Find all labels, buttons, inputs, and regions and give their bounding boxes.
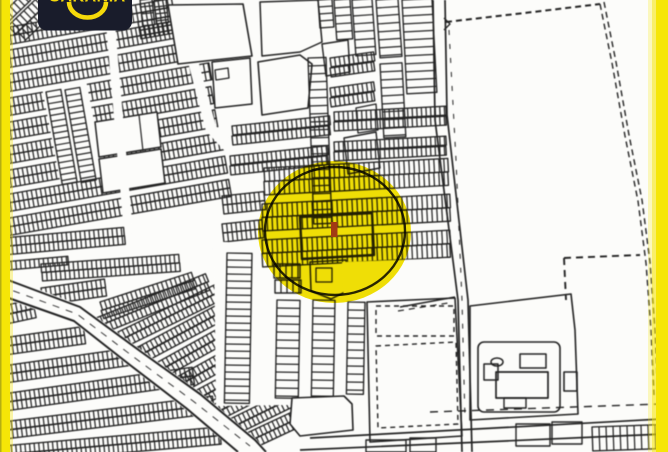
- svg-text:SAKANIA: SAKANIA: [49, 0, 125, 6]
